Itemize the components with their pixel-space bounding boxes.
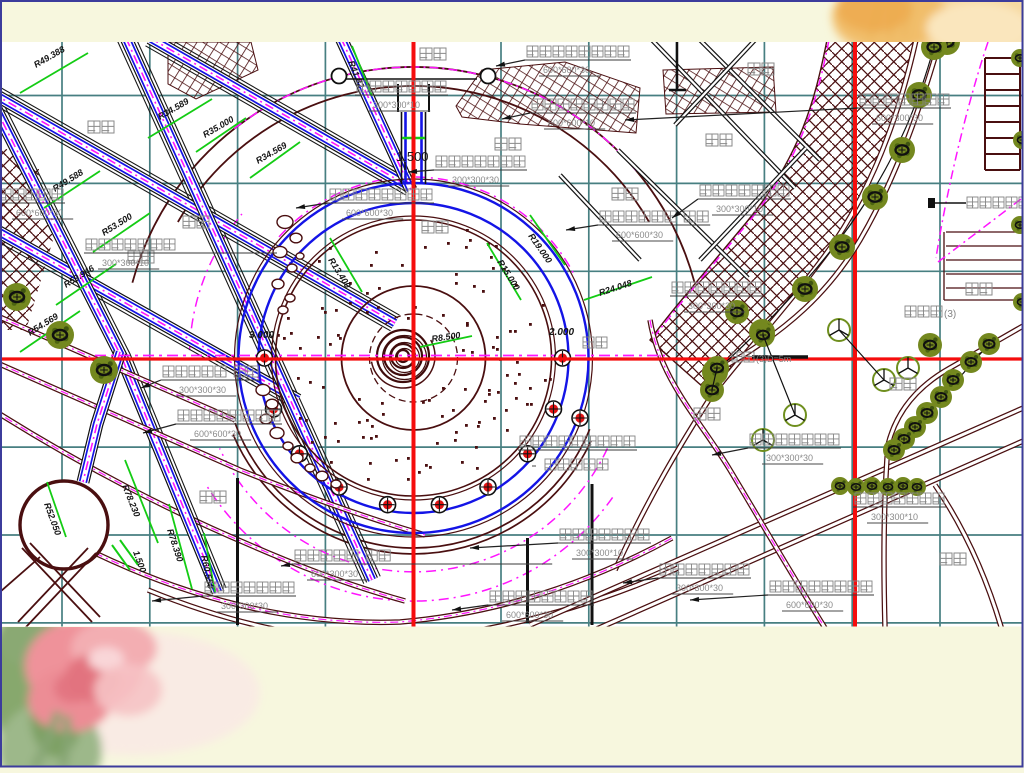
svg-text:300*300*10: 300*300*10 <box>373 100 420 110</box>
svg-text:300*300*30: 300*300*30 <box>179 385 226 395</box>
svg-text:600*600*30: 600*600*30 <box>543 65 590 75</box>
svg-text:600*300*30: 600*300*30 <box>311 569 358 579</box>
svg-text:2.000: 2.000 <box>548 327 574 338</box>
svg-text:3.000: 3.000 <box>249 330 274 341</box>
svg-text:(3): (3) <box>944 309 956 320</box>
svg-text:300*300*30: 300*300*30 <box>676 583 723 593</box>
svg-text:600*600*30: 600*600*30 <box>616 230 663 240</box>
svg-text:300*300*10: 300*300*10 <box>102 258 149 268</box>
svg-text:(3)D=5m: (3)D=5m <box>756 354 791 364</box>
svg-text:300*300*10: 300*300*10 <box>576 548 623 558</box>
svg-text:600*600*30: 600*600*30 <box>506 610 553 620</box>
svg-text:600*600*30: 600*600*30 <box>346 208 393 218</box>
svg-text:600*300*30: 600*300*30 <box>876 113 923 123</box>
svg-text:300*300*30: 300*300*30 <box>221 601 268 611</box>
svg-text:600*600*30: 600*600*30 <box>194 429 241 439</box>
svg-text:600*600*30: 600*600*30 <box>786 600 833 610</box>
svg-text:1.500: 1.500 <box>396 149 429 164</box>
svg-text:300*300*30: 300*300*30 <box>766 453 813 463</box>
svg-text:600*600*30: 600*600*30 <box>16 208 63 218</box>
svg-text:600*600*10: 600*600*10 <box>548 118 595 128</box>
svg-text:300*300*30: 300*300*30 <box>452 175 499 185</box>
svg-text:300*300*10: 300*300*10 <box>871 512 918 522</box>
svg-text:300*300*10: 300*300*10 <box>716 204 763 214</box>
svg-text:300*300*30: 300*300*30 <box>688 301 735 311</box>
